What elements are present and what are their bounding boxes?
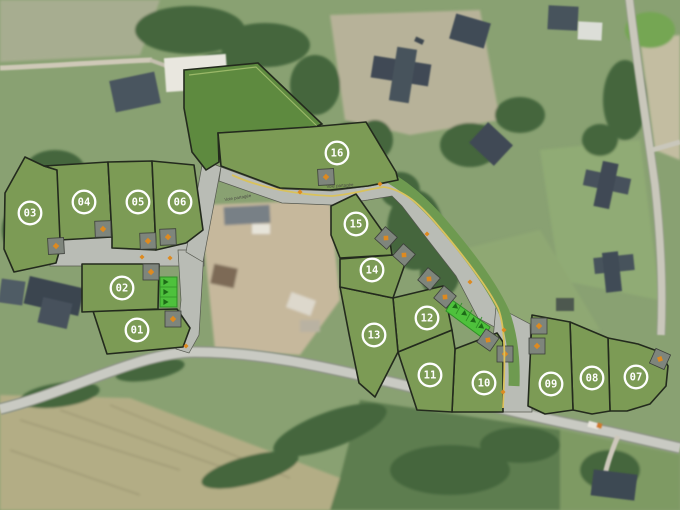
lot-13 <box>340 287 398 397</box>
driveway-lot-08 <box>529 338 545 354</box>
driveway-lot-01 <box>165 311 181 327</box>
lot-number-label: 15 <box>350 219 363 231</box>
lot-number-label: 05 <box>132 197 145 209</box>
lot-number-label: 08 <box>586 373 599 385</box>
lot-number-label: 14 <box>366 265 379 277</box>
lot-number-label: 02 <box>116 283 129 295</box>
lot-number-label: 03 <box>24 208 37 220</box>
driveway-lot-04 <box>95 221 112 238</box>
road-name-label-1: Voie partagée <box>224 193 252 202</box>
site-plan-overlay: 01020304050607080910111213141516Voie par… <box>0 0 680 510</box>
lot-13-parcel[interactable] <box>340 287 398 397</box>
driveway-lot-06 <box>160 229 177 246</box>
lot-number-label: 01 <box>131 325 144 337</box>
lot-plan-aerial-view: 01020304050607080910111213141516Voie par… <box>0 0 680 510</box>
driveway-lot-05 <box>140 233 157 250</box>
lot-number-label: 09 <box>545 379 558 391</box>
lot-number-label: 07 <box>630 372 643 384</box>
entry-marker-icon <box>443 295 448 300</box>
lot-number-label: 12 <box>421 313 434 325</box>
parking-strip-1 <box>160 277 177 307</box>
lot-number-label: 06 <box>174 197 187 209</box>
lot-number-label: 10 <box>478 378 491 390</box>
lot-number-label: 13 <box>368 330 381 342</box>
entry-marker-icon <box>402 253 407 258</box>
driveway-lot-03 <box>48 238 65 255</box>
entry-marker-icon <box>485 337 490 342</box>
driveway-lot-02 <box>143 264 159 280</box>
lot-number-label: 16 <box>331 148 344 160</box>
entry-marker-icon <box>384 236 389 241</box>
lot-number-label: 11 <box>424 370 437 382</box>
entry-marker-icon <box>427 277 432 282</box>
driveway-lot-09 <box>531 318 547 334</box>
lot-number-label: 04 <box>78 197 91 209</box>
